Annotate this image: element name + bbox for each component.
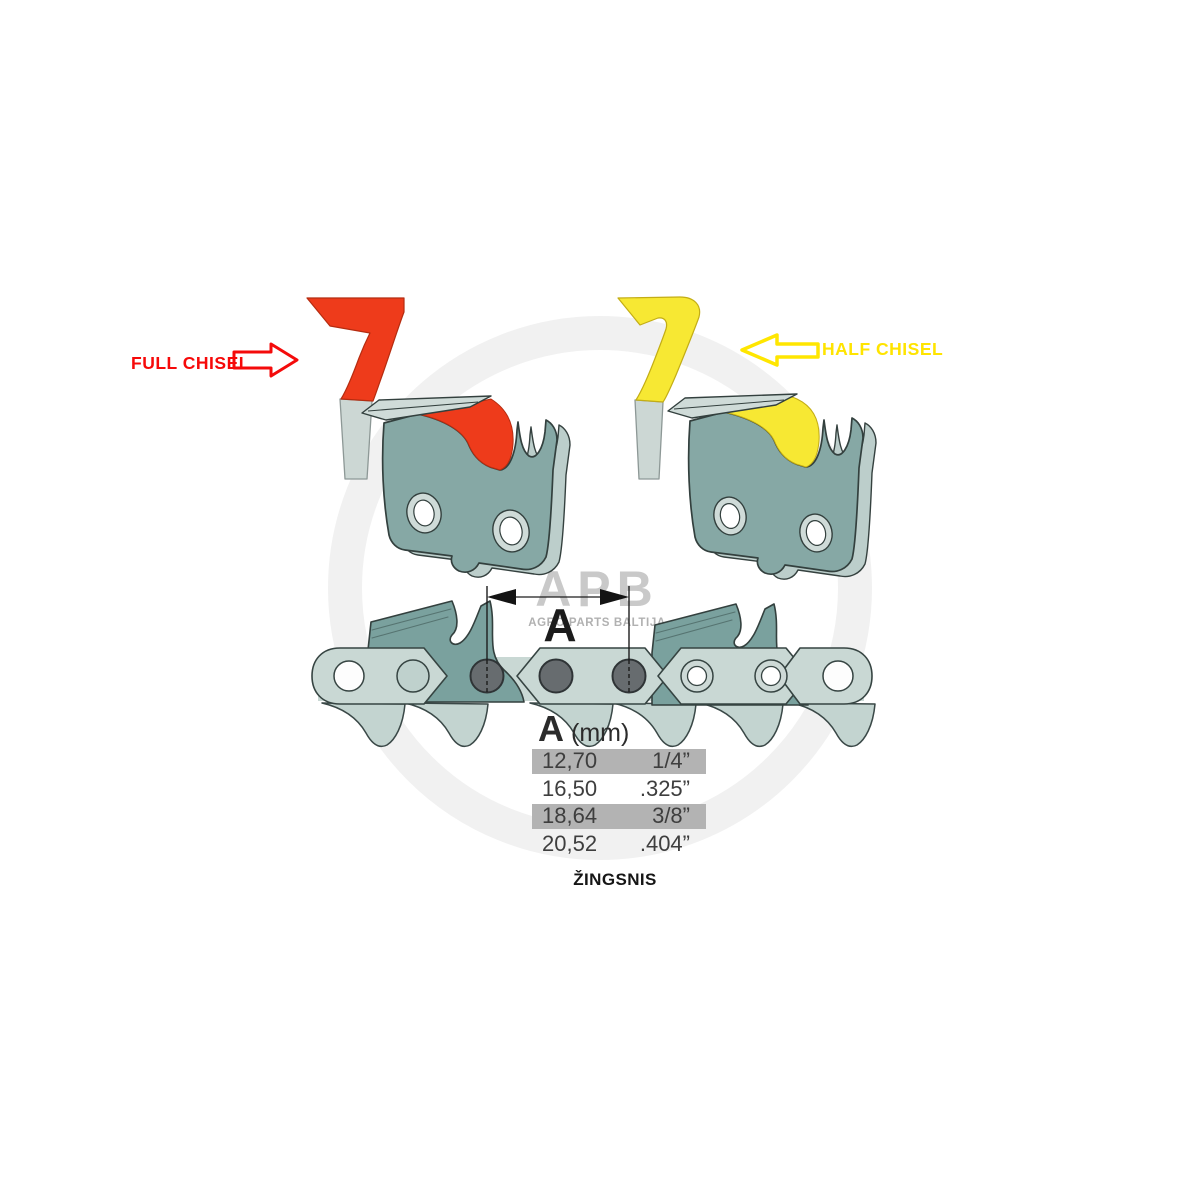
pitch-table-row: 20,52 .404” <box>532 832 706 857</box>
rivet-hole <box>823 661 853 691</box>
pitch-table: 12,70 1/4” 16,50 .325” 18,64 3/8” 20,52 … <box>532 749 706 859</box>
rivet-dark <box>540 660 573 693</box>
half-chisel-label: HALF CHISEL <box>822 339 943 359</box>
pitch-table-row: 12,70 1/4” <box>532 749 706 774</box>
diagram-canvas: APB AGRO PARTS BALTIJA <box>0 0 1188 1188</box>
full-chisel-profile <box>307 298 404 401</box>
half-chisel-group: HALF CHISEL <box>618 297 943 579</box>
pitch-mm: 12,70 <box>542 749 597 774</box>
pitch-mm: 16,50 <box>542 777 597 802</box>
pitch-caption: ŽINGSNIS <box>520 870 710 890</box>
dimension-arrow-left-icon <box>487 589 516 605</box>
pitch-table-row: 16,50 .325” <box>532 777 706 802</box>
pitch-table-header: A (mm) <box>538 711 629 748</box>
pitch-table-header-unit: (mm) <box>571 719 629 748</box>
half-chisel-profile-shank <box>635 400 663 479</box>
pitch-inches: 3/8” <box>652 804 690 829</box>
full-chisel-label: FULL CHISEL <box>131 353 250 373</box>
chainsaw-chain-diagram: APB AGRO PARTS BALTIJA <box>0 0 1188 1188</box>
pitch-inches: .325” <box>640 777 690 802</box>
half-chisel-link <box>668 394 876 579</box>
pitch-inches: 1/4” <box>652 749 690 774</box>
rivet-hole <box>334 661 364 691</box>
pitch-table-header-letter: A <box>538 711 564 747</box>
half-chisel-arrow-icon <box>742 335 818 365</box>
pitch-mm: 18,64 <box>542 804 597 829</box>
pitch-inches: .404” <box>640 832 690 857</box>
pitch-table-row: 18,64 3/8” <box>532 804 706 829</box>
pitch-mm: 20,52 <box>542 832 597 857</box>
rivet-head <box>397 660 429 692</box>
full-chisel-link <box>362 396 570 577</box>
dimension-label: A <box>543 599 576 651</box>
